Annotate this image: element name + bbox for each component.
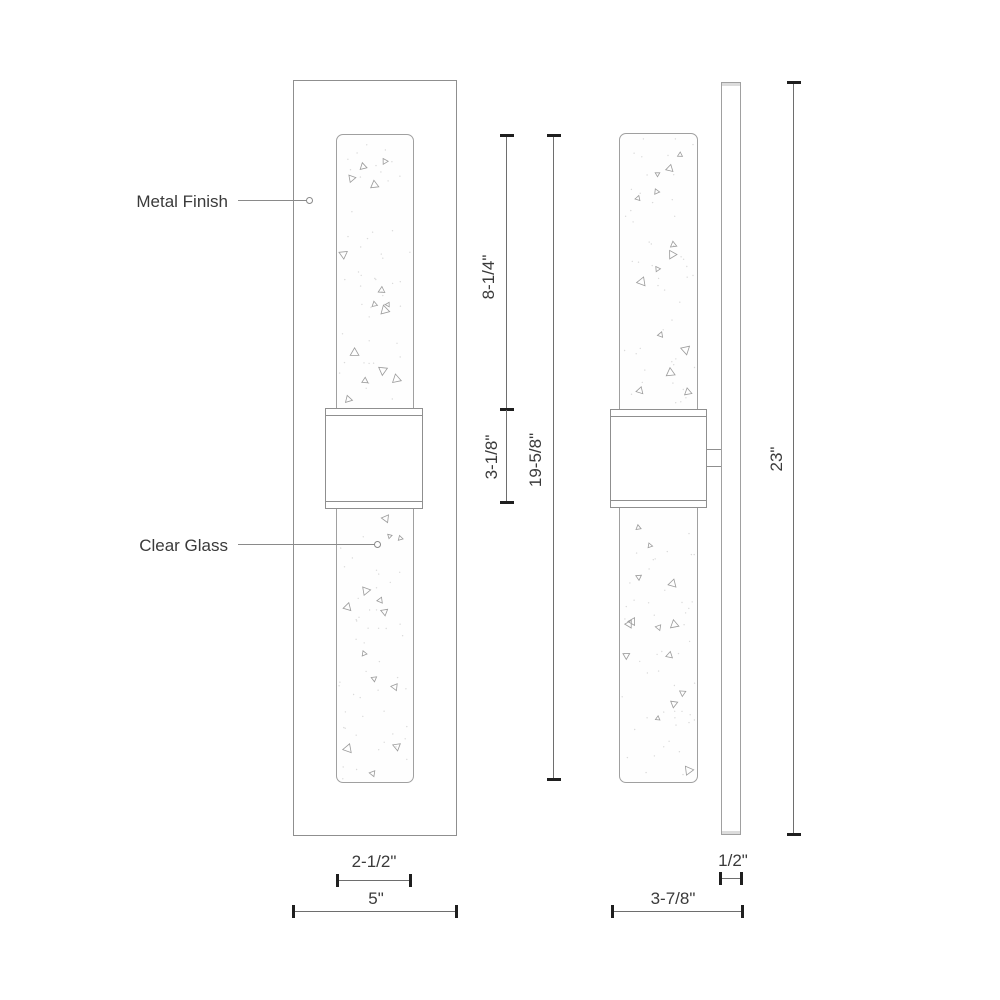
dim-plate-depth-label: 1/2" [718, 851, 748, 871]
front-center-band [325, 408, 423, 509]
side-backplate-bar [721, 82, 741, 835]
spec-drawing: Metal Finish Clear Glass 8-1/4" 3-1/8" 1… [0, 0, 1000, 1000]
metal-finish-leader [238, 200, 307, 201]
dim-glass-total-height-label: 19-5/8" [526, 433, 546, 487]
dim-overall-depth-label: 3-7/8" [651, 889, 696, 909]
dim-overall-height-label: 23" [767, 447, 787, 472]
clear-glass-label: Clear Glass [110, 536, 228, 556]
clear-glass-leader [238, 544, 375, 545]
metal-finish-leader-dot [306, 197, 313, 204]
metal-finish-label: Metal Finish [110, 192, 228, 212]
side-center-band [610, 409, 707, 508]
dim-glass-width-label: 2-1/2" [352, 852, 397, 872]
dim-band-height-label: 3-1/8" [482, 435, 502, 480]
clear-glass-leader-dot [374, 541, 381, 548]
dim-upper-glass-height-label: 8-1/4" [479, 255, 499, 300]
dim-backplate-width-label: 5" [368, 889, 384, 909]
